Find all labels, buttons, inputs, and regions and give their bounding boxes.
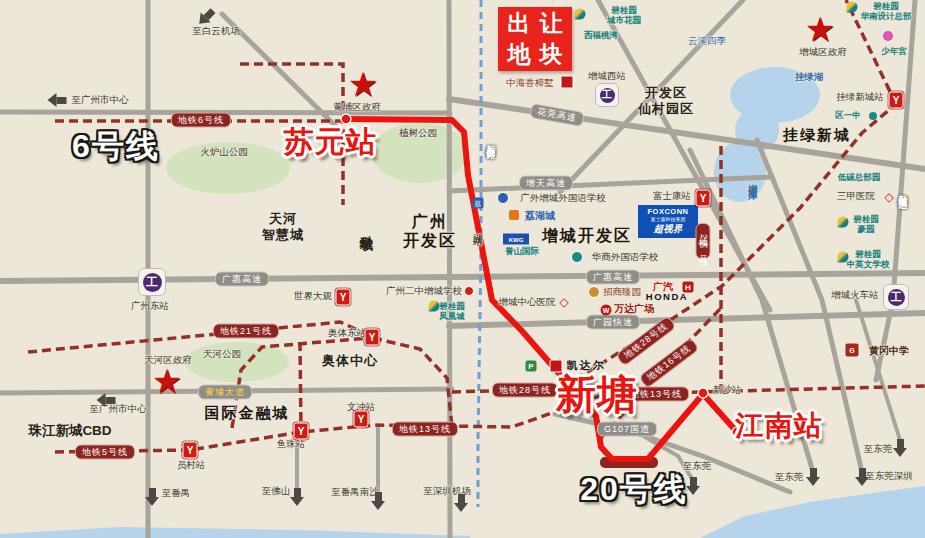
zengcheng-gov-label: 增城区政府 (799, 46, 847, 57)
to-dongguan-label-2: 至东莞 (775, 471, 804, 482)
bgy-school-label: 碧桂园中英文学校 (847, 249, 890, 269)
worlds-grand-view-station-icon: Y (336, 289, 351, 306)
tianhe-park-label: 天河公园 (203, 348, 241, 359)
line28-banner: 地铁28号线 (492, 383, 558, 398)
huanggang-school-label: 黄冈中学 (869, 345, 909, 357)
yunxi-label: 云溪四季 (688, 35, 726, 46)
kwg-logo-icon: KWG (503, 234, 529, 245)
xincheng-avenue-label: 新城大道 (897, 186, 908, 194)
huangpu-gov-star-icon: ★ (348, 67, 378, 101)
school-dot-icon (869, 112, 877, 120)
line5-banner: 地铁5号线 (75, 445, 135, 460)
bgy-phoenix-label: 碧桂园凤凰城 (439, 301, 465, 321)
land-parcel-box: 出让 地块 (498, 7, 572, 71)
arrow-left-icon-2 (97, 393, 116, 407)
line21-banner: 地铁21号线 (213, 324, 279, 339)
wenchong-station-icon: Y (354, 411, 369, 428)
gualv-lake-label: 挂绿湖 (795, 71, 824, 82)
huashang-school-label: 华商外国语学校 (592, 251, 659, 262)
wanda-logo-icon: W (601, 305, 612, 316)
zengcheng-gov-star-icon: ★ (805, 12, 835, 46)
jiangnan-station-big-label: 江南站 (736, 409, 823, 443)
honda-label: HONDA (646, 291, 688, 302)
foxconn-station-label: 富士康站 (653, 190, 691, 201)
zengcheng-dev-zone-label: 增城开发区 (542, 226, 632, 245)
zhishu-park-label: 植树公园 (399, 127, 437, 138)
hospital-label: 三甲医院 (837, 190, 875, 201)
arrow-down-icon-6 (806, 468, 820, 486)
school-dot-icon-2 (464, 286, 474, 296)
bgy-haoyuan-label: 碧桂园豪园 (853, 214, 879, 234)
zengcheng-hospital-label: 增城中心医院 (499, 296, 556, 307)
zengtian-expwy-banner: 增天高速 (519, 176, 573, 191)
zengcheng-railway-station-label: 增城火车站 (831, 289, 879, 300)
youth-palace-label: 少年宫 (881, 46, 907, 56)
xiancun-park-zone-label: 开发区仙村园区 (638, 85, 694, 116)
intl-finance-city-label: 国际金融城 (205, 404, 290, 422)
gz-no2-school-label: 广州二中增城学校 (386, 285, 462, 296)
foxconn-line3: 超视界 (639, 223, 697, 236)
zhaoshang-label: 招商臻园 (603, 286, 641, 297)
arrow-down-icon-3 (371, 492, 385, 510)
yuancun-station-icon: Y (183, 442, 198, 459)
foxconn-station-icon: Y (696, 190, 711, 207)
lihucheng-label: 荔湖城 (525, 210, 555, 222)
to-panyu-label: 至番禺 (162, 487, 191, 498)
lihucheng-logo-icon (509, 210, 519, 220)
bgy-design-hq-label: 碧桂园华南设计总部 (861, 1, 912, 21)
land-parcel-line2: 地块 (499, 39, 572, 70)
huanggang-logo-icon: G (846, 344, 859, 357)
lowcarbon-hq-label: 低碳总部园 (838, 172, 881, 182)
foxconn-line1: FOXCONN (639, 207, 697, 216)
zengtang-reservoir-label: 增塘水库 (747, 176, 758, 184)
hospital-diamond-icon: ◇ (884, 191, 893, 203)
district-no1-school-label: 区一中 (835, 110, 861, 120)
guangzhou-east-station-label: 广州东站 (131, 300, 169, 311)
school-logo-icon (497, 192, 509, 204)
tianhe-gov-star-icon: ★ (152, 364, 182, 398)
lihucheng-station-label: 湖城站 (472, 225, 483, 231)
huolushan-park-label: 火炉山公园 (200, 146, 248, 157)
arrow-down-icon-8 (893, 439, 907, 457)
honda-logo-icon: H (683, 282, 694, 293)
biguiyuan-logo-icon-3 (838, 217, 849, 228)
suyuan-station-big-label: 苏元站 (284, 124, 377, 160)
to-city-center-label: 至广州市中心 (72, 94, 129, 105)
arrow-down-icon-7 (855, 468, 869, 486)
guanghui-expwy-banner: 广惠高速 (215, 272, 269, 287)
school-logo-icon-2 (571, 251, 583, 263)
zengcheng-railway-icon: 工 (883, 284, 909, 310)
g107-banner: G107国道 (597, 422, 657, 437)
yuzhu-station-icon: Y (294, 423, 309, 440)
wanda-plaza-label: 万达广场 (614, 303, 654, 315)
guanghui-expwy-banner-2: 广惠高速 (586, 270, 640, 285)
foxconn-box: FOXCONN 富士康科技集团 超视界 (637, 204, 699, 239)
to-baiyun-airport-label: 至白云机场 (192, 25, 240, 36)
to-dongguan-shenzhen-label: 至东莞深圳 (865, 470, 913, 481)
guangzhou-dev-zone-label: 广州开发区 (403, 212, 457, 250)
kaidar-logo-icon: P (526, 361, 537, 372)
hospital-diamond-icon-2: ◇ (559, 296, 568, 308)
bgy-city-garden-label: 碧桂园城市花园 (607, 5, 641, 25)
huangpu-avenue-banner: 黄埔大道 (198, 385, 252, 400)
zengcheng-west-station-label: 增城西站 (588, 70, 626, 81)
tianhe-smart-city-label: 天河智慧城 (262, 211, 304, 242)
arrow-left-icon (48, 93, 67, 107)
aoti-center-label: 奥体中心 (322, 353, 378, 369)
biguiyuan-logo-icon-2 (847, 2, 858, 13)
xintang-big-label: 新塘 (556, 370, 638, 418)
land-parcel-line1: 出让 (499, 8, 572, 39)
biguiyuan-logo-icon-4 (838, 252, 849, 263)
arrow-down-icon-4 (454, 494, 468, 512)
gualv-newtown-station-label: 挂绿新城站 (836, 91, 884, 102)
xifu-label: 西福桃湾 (584, 30, 618, 40)
zengcheng-west-railway-icon: 工 (595, 83, 619, 107)
gw-foreign-school-label: 广外增城外国语学校 (520, 192, 606, 203)
guangyuan-expwy-banner: 广园快速 (586, 315, 640, 330)
zhonghai-logo-icon (561, 76, 574, 89)
zhujiang-cbd-label: 珠江新城CBD (28, 423, 111, 439)
xinsha-station-label: 新沙站 (713, 384, 742, 395)
map-canvas[interactable]: 出让 地块 中海香樟墅 FOXCONN 富士康科技集团 超视界 至白云机场至广州… (0, 0, 925, 538)
biguiyuan-logo-icon (575, 9, 586, 20)
gualv-newtown-station-icon: Y (889, 92, 904, 109)
line6-banner: 地铁6号线 (171, 113, 231, 128)
youth-palace-flower-icon (883, 31, 893, 41)
line6-big-label: 6号线 (72, 127, 160, 165)
foxconn-line2: 富士康科技集团 (642, 216, 694, 222)
yuancun-station-label: 员村站 (177, 459, 206, 470)
science-city-label: 科学城 (358, 226, 374, 229)
gualv-newtown-label: 挂绿新城 (783, 126, 851, 144)
zhaoshang-logo-icon (588, 286, 600, 298)
line20-big-label: 20号线 (580, 470, 688, 508)
line27-banner: 地铁27号线 (696, 223, 711, 259)
land-parcel-subtitle: 中海香樟墅 (506, 77, 554, 88)
xinxin-road-label: 新新公路 (485, 136, 496, 144)
line13-banner: 地铁13号线 (392, 422, 458, 437)
arrow-down-icon-2 (290, 488, 304, 506)
aoti-east-station-icon: Y (365, 329, 380, 346)
to-dongguan-label-3: 至东莞 (864, 443, 893, 454)
aoti-east-station-label: 奥体东站 (328, 327, 366, 338)
arrow-down-icon-1 (145, 488, 159, 506)
worlds-grand-view-label: 世界大观 (294, 290, 332, 301)
biguiyuan-logo-icon-5 (429, 301, 440, 312)
yushan-intl-label: 誉山国际 (505, 246, 539, 256)
to-foshan-label: 至佛山 (262, 485, 291, 496)
guangzhou-east-railway-icon: 工 (138, 268, 166, 296)
huangpu-gov-label: 黄埔区政府 (333, 101, 381, 112)
lihucheng-station-icon-glyph: 荔 (473, 198, 484, 209)
yuzhu-station-label: 鱼珠站 (277, 438, 306, 449)
